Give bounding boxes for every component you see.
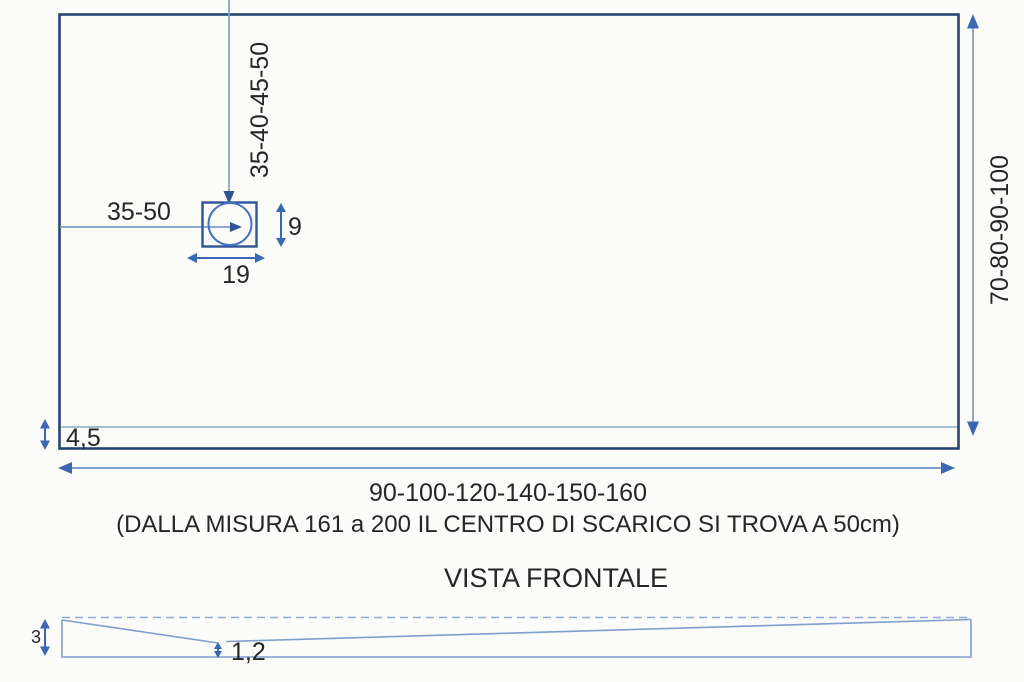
min-center-height-dimension: [214, 642, 222, 658]
tray-depth-dimension: [967, 14, 979, 436]
drain-width-label: 19: [222, 261, 250, 289]
edge-height-dimension: [40, 619, 50, 656]
technical-drawing-page: 35-40-45-50 35-50 9 19 70-80-90-100 4,5 …: [0, 0, 1024, 682]
front-view: VISTA FRONTALE 3 1,2: [31, 563, 971, 666]
tray-length-label: 90-100-120-140-150-160: [369, 479, 647, 507]
border-thickness-dimension: [40, 419, 50, 450]
front-view-right-slope: [226, 620, 971, 642]
edge-height-label: 3: [31, 627, 41, 647]
tray-depth-label: 70-80-90-100: [986, 155, 1014, 305]
drain-horizontal-offset-label: 35-50: [107, 198, 171, 226]
min-center-height-label: 1,2: [231, 638, 266, 666]
shower-tray-diagram: 35-40-45-50 35-50 9 19 70-80-90-100 4,5 …: [0, 0, 1024, 682]
front-view-title: VISTA FRONTALE: [444, 563, 668, 593]
tray-length-dimension: [58, 462, 955, 474]
front-view-left-slope: [62, 620, 218, 643]
drain-height-dimension: [276, 203, 286, 247]
drain-height-label: 9: [288, 213, 302, 241]
drain-horizontal-offset-arrowhead: [230, 222, 242, 232]
top-view: 35-40-45-50 35-50 9 19 70-80-90-100 4,5 …: [40, 0, 1014, 538]
drain-vertical-offset-label: 35-40-45-50: [246, 42, 274, 178]
border-thickness-label: 4,5: [66, 424, 101, 452]
drain-square: [203, 203, 257, 247]
front-view-outline: [62, 620, 971, 658]
tray-outline: [60, 15, 959, 449]
drain-note-label: (DALLA MISURA 161 a 200 IL CENTRO DI SCA…: [116, 511, 900, 538]
